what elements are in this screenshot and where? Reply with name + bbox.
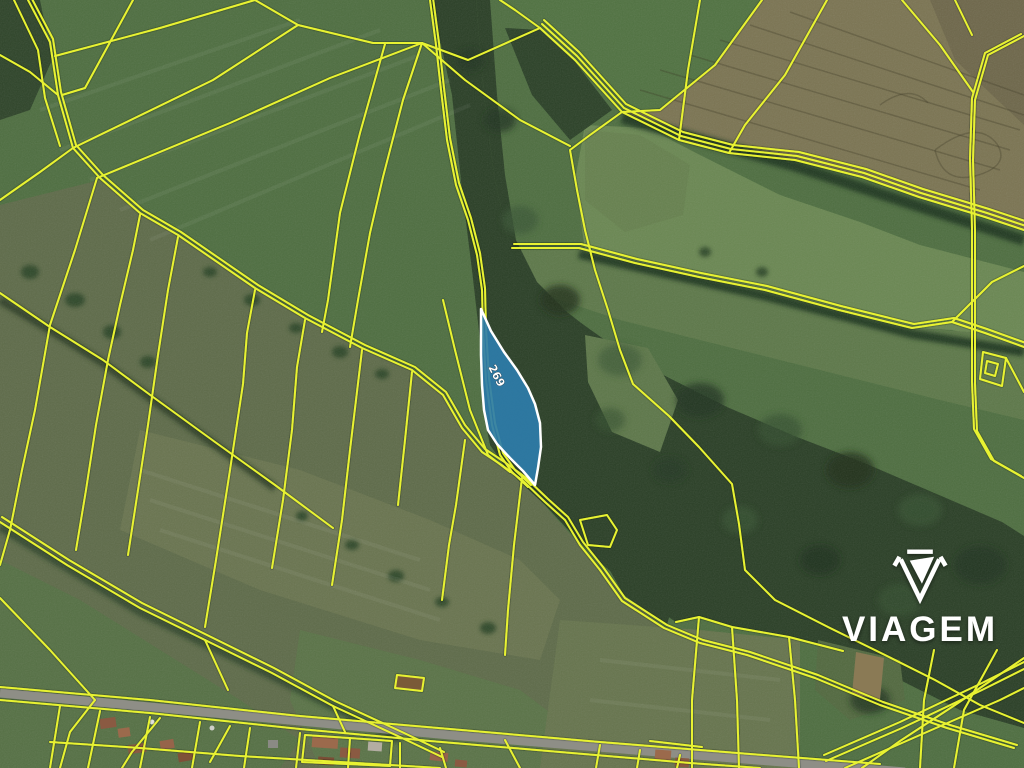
building: [368, 742, 383, 752]
building: [455, 759, 468, 767]
viagem-logo-text: VIAGEM: [842, 610, 998, 649]
car: [210, 726, 215, 731]
satellite-map: 269 VIAGEM: [0, 0, 1024, 768]
building: [655, 749, 672, 760]
garden-patch: [852, 652, 884, 700]
map-viewport: 269 VIAGEM: [0, 0, 1024, 768]
brown-strip-parcel: [395, 675, 424, 691]
building: [118, 727, 131, 738]
building: [268, 740, 278, 748]
